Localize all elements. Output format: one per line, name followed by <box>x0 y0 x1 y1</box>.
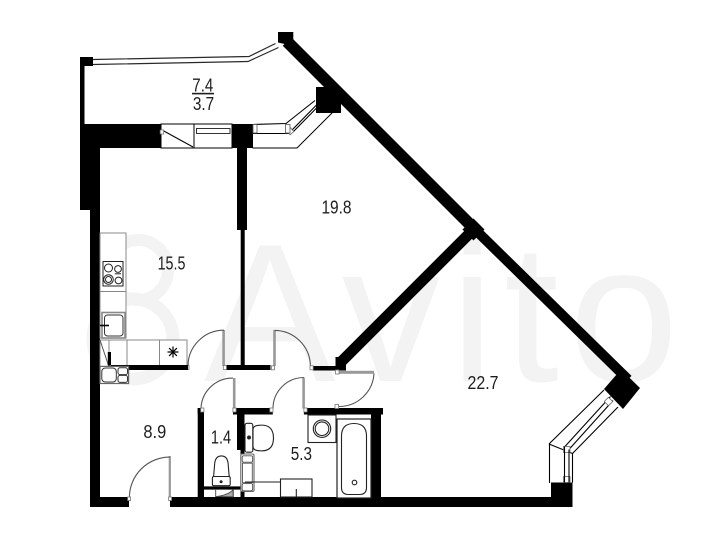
svg-text:19.8: 19.8 <box>321 197 351 218</box>
svg-text:3.7: 3.7 <box>193 93 214 114</box>
svg-text:22.7: 22.7 <box>468 372 499 393</box>
svg-text:1.4: 1.4 <box>211 426 231 447</box>
svg-text:15.5: 15.5 <box>158 253 186 274</box>
svg-text:8.9: 8.9 <box>143 421 166 442</box>
svg-text:5.3: 5.3 <box>291 443 312 464</box>
